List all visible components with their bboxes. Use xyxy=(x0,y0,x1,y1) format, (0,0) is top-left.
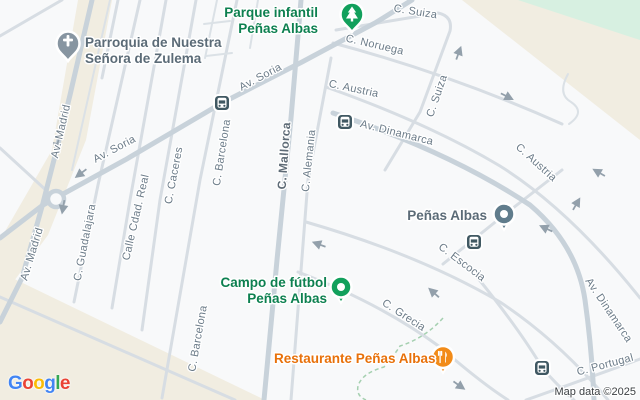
street-label-calle-cdad-real: Calle Cdad. Real xyxy=(120,173,151,261)
poi-label-campo-line1[interactable]: Campo de fútbol xyxy=(221,275,328,290)
poi-label-restaurante[interactable]: Restaurante Peñas Albas xyxy=(274,351,436,366)
one-way-arrow-icon xyxy=(74,166,88,179)
poi-label-parroquia-line2[interactable]: Señora de Zulema xyxy=(85,51,202,66)
one-way-arrow-icon xyxy=(451,379,465,392)
logo-letter: o xyxy=(33,373,44,394)
street-label-c-alemania: C. Alemania xyxy=(300,128,319,192)
campo-pin[interactable] xyxy=(331,277,352,304)
map-canvas[interactable]: Av. Madrid Av. Madrid Av. Soria Av. Sori… xyxy=(0,0,640,400)
road-unnamed-vertical-4 xyxy=(477,277,574,400)
dot-icon xyxy=(337,283,345,291)
street-label-av-dinamarca-1: Av. Dinamarca xyxy=(359,118,435,148)
road-c-grecia xyxy=(298,272,508,400)
one-way-arrow-icon xyxy=(427,286,441,299)
street-label-c-barcelona-1: C. Barcelona xyxy=(211,118,233,187)
google-logo[interactable]: Google xyxy=(8,373,70,395)
poi-label-parque-line2[interactable]: Peñas Albas xyxy=(238,21,318,36)
street-label-c-grecia: C. Grecia xyxy=(380,297,428,334)
poi-label-penas-albas[interactable]: Peñas Albas xyxy=(407,208,487,223)
logo-letter: g xyxy=(44,373,55,394)
one-way-arrow-icon xyxy=(570,197,582,211)
logo-letter: e xyxy=(60,373,70,394)
map-tiles: Av. Madrid Av. Madrid Av. Soria Av. Sori… xyxy=(0,0,640,400)
logo-letter: G xyxy=(8,373,22,394)
map-data-attribution: Map data ©2025 xyxy=(555,386,637,398)
street-label-c-mallorca: C. Mallorca xyxy=(275,122,294,190)
street-label-c-portugal: C. Portugal xyxy=(576,352,635,379)
street-label-c-suiza-2: C. Suiza xyxy=(424,73,450,119)
penas-albas-pin[interactable] xyxy=(494,204,515,231)
one-way-arrow-icon xyxy=(313,239,327,250)
transit-stop-icon[interactable] xyxy=(466,234,482,250)
dot-icon xyxy=(500,210,508,218)
transit-stop-icon[interactable] xyxy=(337,114,353,130)
roundabout xyxy=(48,191,64,207)
street-label-c-caceres: C. Caceres xyxy=(163,146,186,205)
street-label-c-barcelona-2: C. Barcelona xyxy=(186,304,210,373)
road-c-escocia xyxy=(306,222,608,400)
road-c-austria xyxy=(326,87,640,298)
poi-label-campo-line2[interactable]: Peñas Albas xyxy=(247,291,327,306)
one-way-arrow-icon xyxy=(453,47,464,61)
poi-label-parroquia-line1[interactable]: Parroquia de Nuestra xyxy=(85,35,222,50)
poi-label-parque-line1[interactable]: Parque infantil xyxy=(224,5,318,20)
street-label-c-guadalajara: C. Guadalajara xyxy=(72,202,99,282)
street-label-av-soria-1: Av. Soria xyxy=(91,133,138,166)
road-topleft-diagonal xyxy=(0,0,62,36)
logo-letter: o xyxy=(22,373,33,394)
transit-stop-icon[interactable] xyxy=(534,360,550,376)
one-way-arrow-icon xyxy=(592,167,606,179)
transit-stop-icon[interactable] xyxy=(214,95,230,111)
